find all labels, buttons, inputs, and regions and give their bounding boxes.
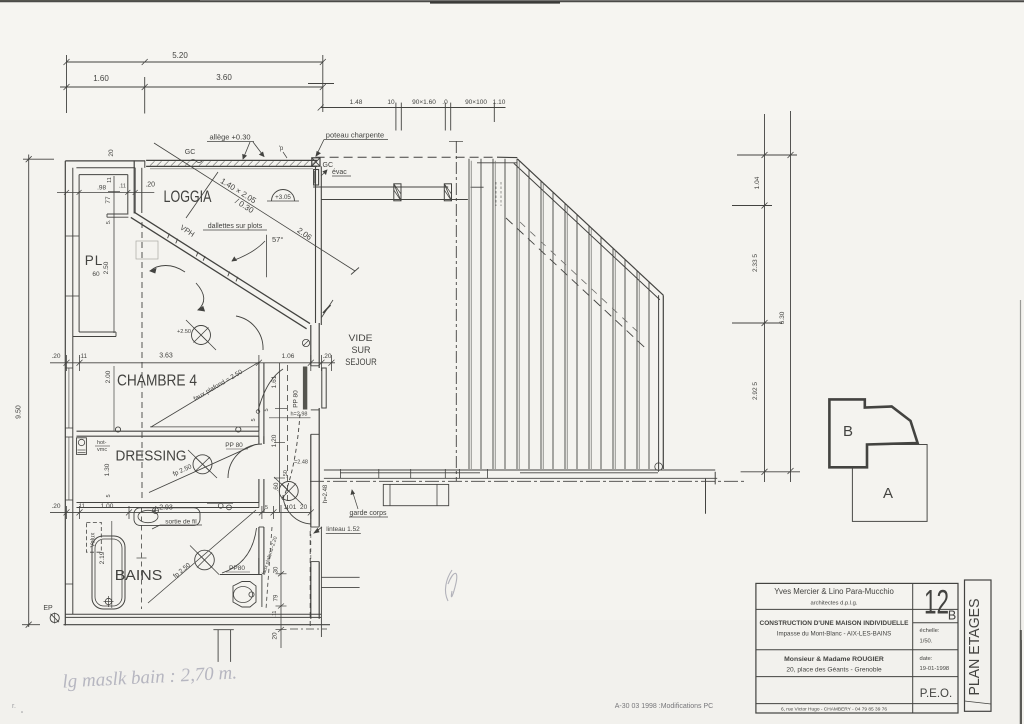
svg-text:6, rue Victor Hugo - CHAMBERY: 6, rue Victor Hugo - CHAMBERY - 04 79 85…	[781, 707, 887, 713]
svg-text:11: 11	[107, 177, 113, 183]
svg-text:.50: .50	[283, 470, 289, 478]
svg-text:CHAMBRE 4: CHAMBRE 4	[117, 373, 197, 390]
svg-text:évac: évac	[332, 169, 347, 176]
svg-text:.20: .20	[322, 353, 331, 360]
svg-text:.11: .11	[77, 504, 86, 510]
svg-text:3.60: 3.60	[216, 73, 232, 82]
svg-text:DRESSING: DRESSING	[116, 449, 187, 465]
svg-text:LOGGIA: LOGGIA	[164, 187, 212, 206]
svg-text:.60: .60	[273, 482, 280, 491]
svg-text:.98: .98	[97, 185, 106, 192]
svg-text:VIDE: VIDE	[349, 333, 373, 344]
svg-text:GC: GC	[185, 149, 196, 156]
svg-text:2.19: 2.19	[99, 551, 106, 564]
svg-text:5: 5	[264, 408, 270, 411]
svg-text:1.04: 1.04	[754, 176, 761, 189]
svg-text:vmc: vmc	[97, 447, 107, 453]
svg-text:1.06: 1.06	[282, 353, 295, 360]
svg-text:2.00: 2.00	[105, 370, 112, 383]
svg-text:Monsieur & Madame ROUGIER: Monsieur & Madame ROUGIER	[784, 656, 884, 663]
svg-text:échelle:: échelle:	[920, 628, 940, 634]
svg-text:Impasse du Mont-Blanc - AIX-LE: Impasse du Mont-Blanc - AIX-LES-BAINS	[777, 631, 892, 638]
svg-text:h=2.48: h=2.48	[323, 484, 329, 503]
svg-text:77: 77	[105, 196, 112, 204]
svg-text:19-01-1998: 19-01-1998	[920, 666, 950, 672]
svg-text:.11: .11	[79, 354, 88, 360]
svg-text:h=2.98: h=2.98	[291, 412, 308, 418]
svg-text:CONSTRUCTION D'UNE MAISON INDI: CONSTRUCTION D'UNE MAISON INDIVIDUELLE	[760, 620, 910, 627]
svg-text:+3.05: +3.05	[275, 194, 291, 201]
svg-text:1.30: 1.30	[104, 463, 111, 476]
svg-text:.20: .20	[51, 353, 60, 360]
svg-text:6.30: 6.30	[779, 311, 786, 324]
svg-text:1.61: 1.61	[271, 375, 278, 388]
svg-text:2.92 5: 2.92 5	[752, 382, 759, 400]
svg-text:1.48: 1.48	[350, 99, 363, 106]
svg-text:EP: EP	[43, 605, 53, 612]
svg-text:garde corps: garde corps	[350, 510, 387, 517]
svg-text:PLAN ETAGES: PLAN ETAGES	[966, 599, 983, 696]
svg-text:57°: 57°	[272, 235, 283, 244]
svg-text:1.00: 1.00	[101, 503, 114, 510]
svg-text:9.50: 9.50	[16, 405, 23, 419]
svg-text:10: 10	[387, 99, 395, 106]
svg-text:linteau 1.52: linteau 1.52	[326, 526, 360, 533]
svg-text:r.: r.	[12, 703, 16, 710]
svg-text:date:: date:	[920, 656, 933, 662]
svg-text:'p: 'p	[279, 146, 284, 152]
svg-text:90×1.60: 90×1.60	[412, 99, 436, 106]
svg-text:P.E.O.: P.E.O.	[920, 688, 952, 700]
svg-text:B: B	[843, 423, 853, 440]
svg-text:20, place des Géants - Grenobl: 20, place des Géants - Grenoble	[786, 667, 882, 674]
svg-text:1.20: 1.20	[271, 434, 278, 447]
svg-text:5.20: 5.20	[172, 51, 188, 60]
svg-text:allège +0.30: allège +0.30	[209, 133, 250, 142]
svg-text:79: 79	[274, 594, 280, 601]
svg-text:1.01: 1.01	[284, 504, 297, 511]
svg-text:PP 80: PP 80	[293, 390, 300, 408]
svg-text:GC: GC	[323, 162, 334, 169]
svg-text:poteau charpente: poteau charpente	[326, 131, 384, 140]
svg-text:PP 80: PP 80	[225, 442, 243, 449]
svg-text:5.: 5.	[106, 219, 112, 224]
svg-text:Velux: Velux	[91, 533, 97, 548]
svg-text:2.33 5: 2.33 5	[752, 254, 759, 272]
svg-text:dallettes sur plots: dallettes sur plots	[208, 223, 263, 230]
svg-text:90×100: 90×100	[465, 99, 487, 106]
svg-text:A-30 03 1998 :Modifications PC: A-30 03 1998 :Modifications PC	[615, 703, 713, 710]
svg-text:SEJOUR: SEJOUR	[345, 357, 377, 368]
svg-text:5: 5	[251, 418, 257, 421]
svg-text:5: 5	[106, 494, 112, 497]
svg-text:+2.50: +2.50	[177, 329, 191, 335]
svg-text:hot-: hot-	[97, 440, 107, 446]
svg-text:.20: .20	[145, 182, 155, 189]
svg-text:.20: .20	[51, 503, 60, 510]
svg-text:A: A	[883, 485, 893, 502]
svg-text:12: 12	[924, 584, 949, 622]
svg-text:B: B	[948, 609, 956, 623]
svg-text:5: 5	[265, 505, 268, 511]
svg-text:SUR: SUR	[352, 345, 371, 356]
svg-text:60: 60	[92, 271, 100, 278]
svg-text:20: 20	[300, 504, 308, 511]
svg-text:.11: .11	[119, 184, 126, 190]
svg-text:1.60: 1.60	[93, 74, 109, 83]
svg-text:20: 20	[272, 632, 279, 640]
svg-text:2.50: 2.50	[103, 261, 110, 274]
svg-text:Yves Mercier & Lino Para-Mucch: Yves Mercier & Lino Para-Mucchio	[774, 587, 894, 596]
svg-text:3.63: 3.63	[159, 353, 173, 360]
svg-text:=2.48: =2.48	[294, 460, 308, 466]
svg-text:30: 30	[274, 566, 280, 573]
svg-text:sortie de fil: sortie de fil	[165, 519, 197, 526]
svg-text:PL: PL	[85, 253, 104, 268]
svg-text:1/50.: 1/50.	[920, 639, 933, 645]
svg-text:.11: .11	[272, 610, 278, 617]
svg-text:20: 20	[108, 149, 115, 157]
svg-text:architectes d.p.l.g.: architectes d.p.l.g.	[810, 601, 857, 607]
